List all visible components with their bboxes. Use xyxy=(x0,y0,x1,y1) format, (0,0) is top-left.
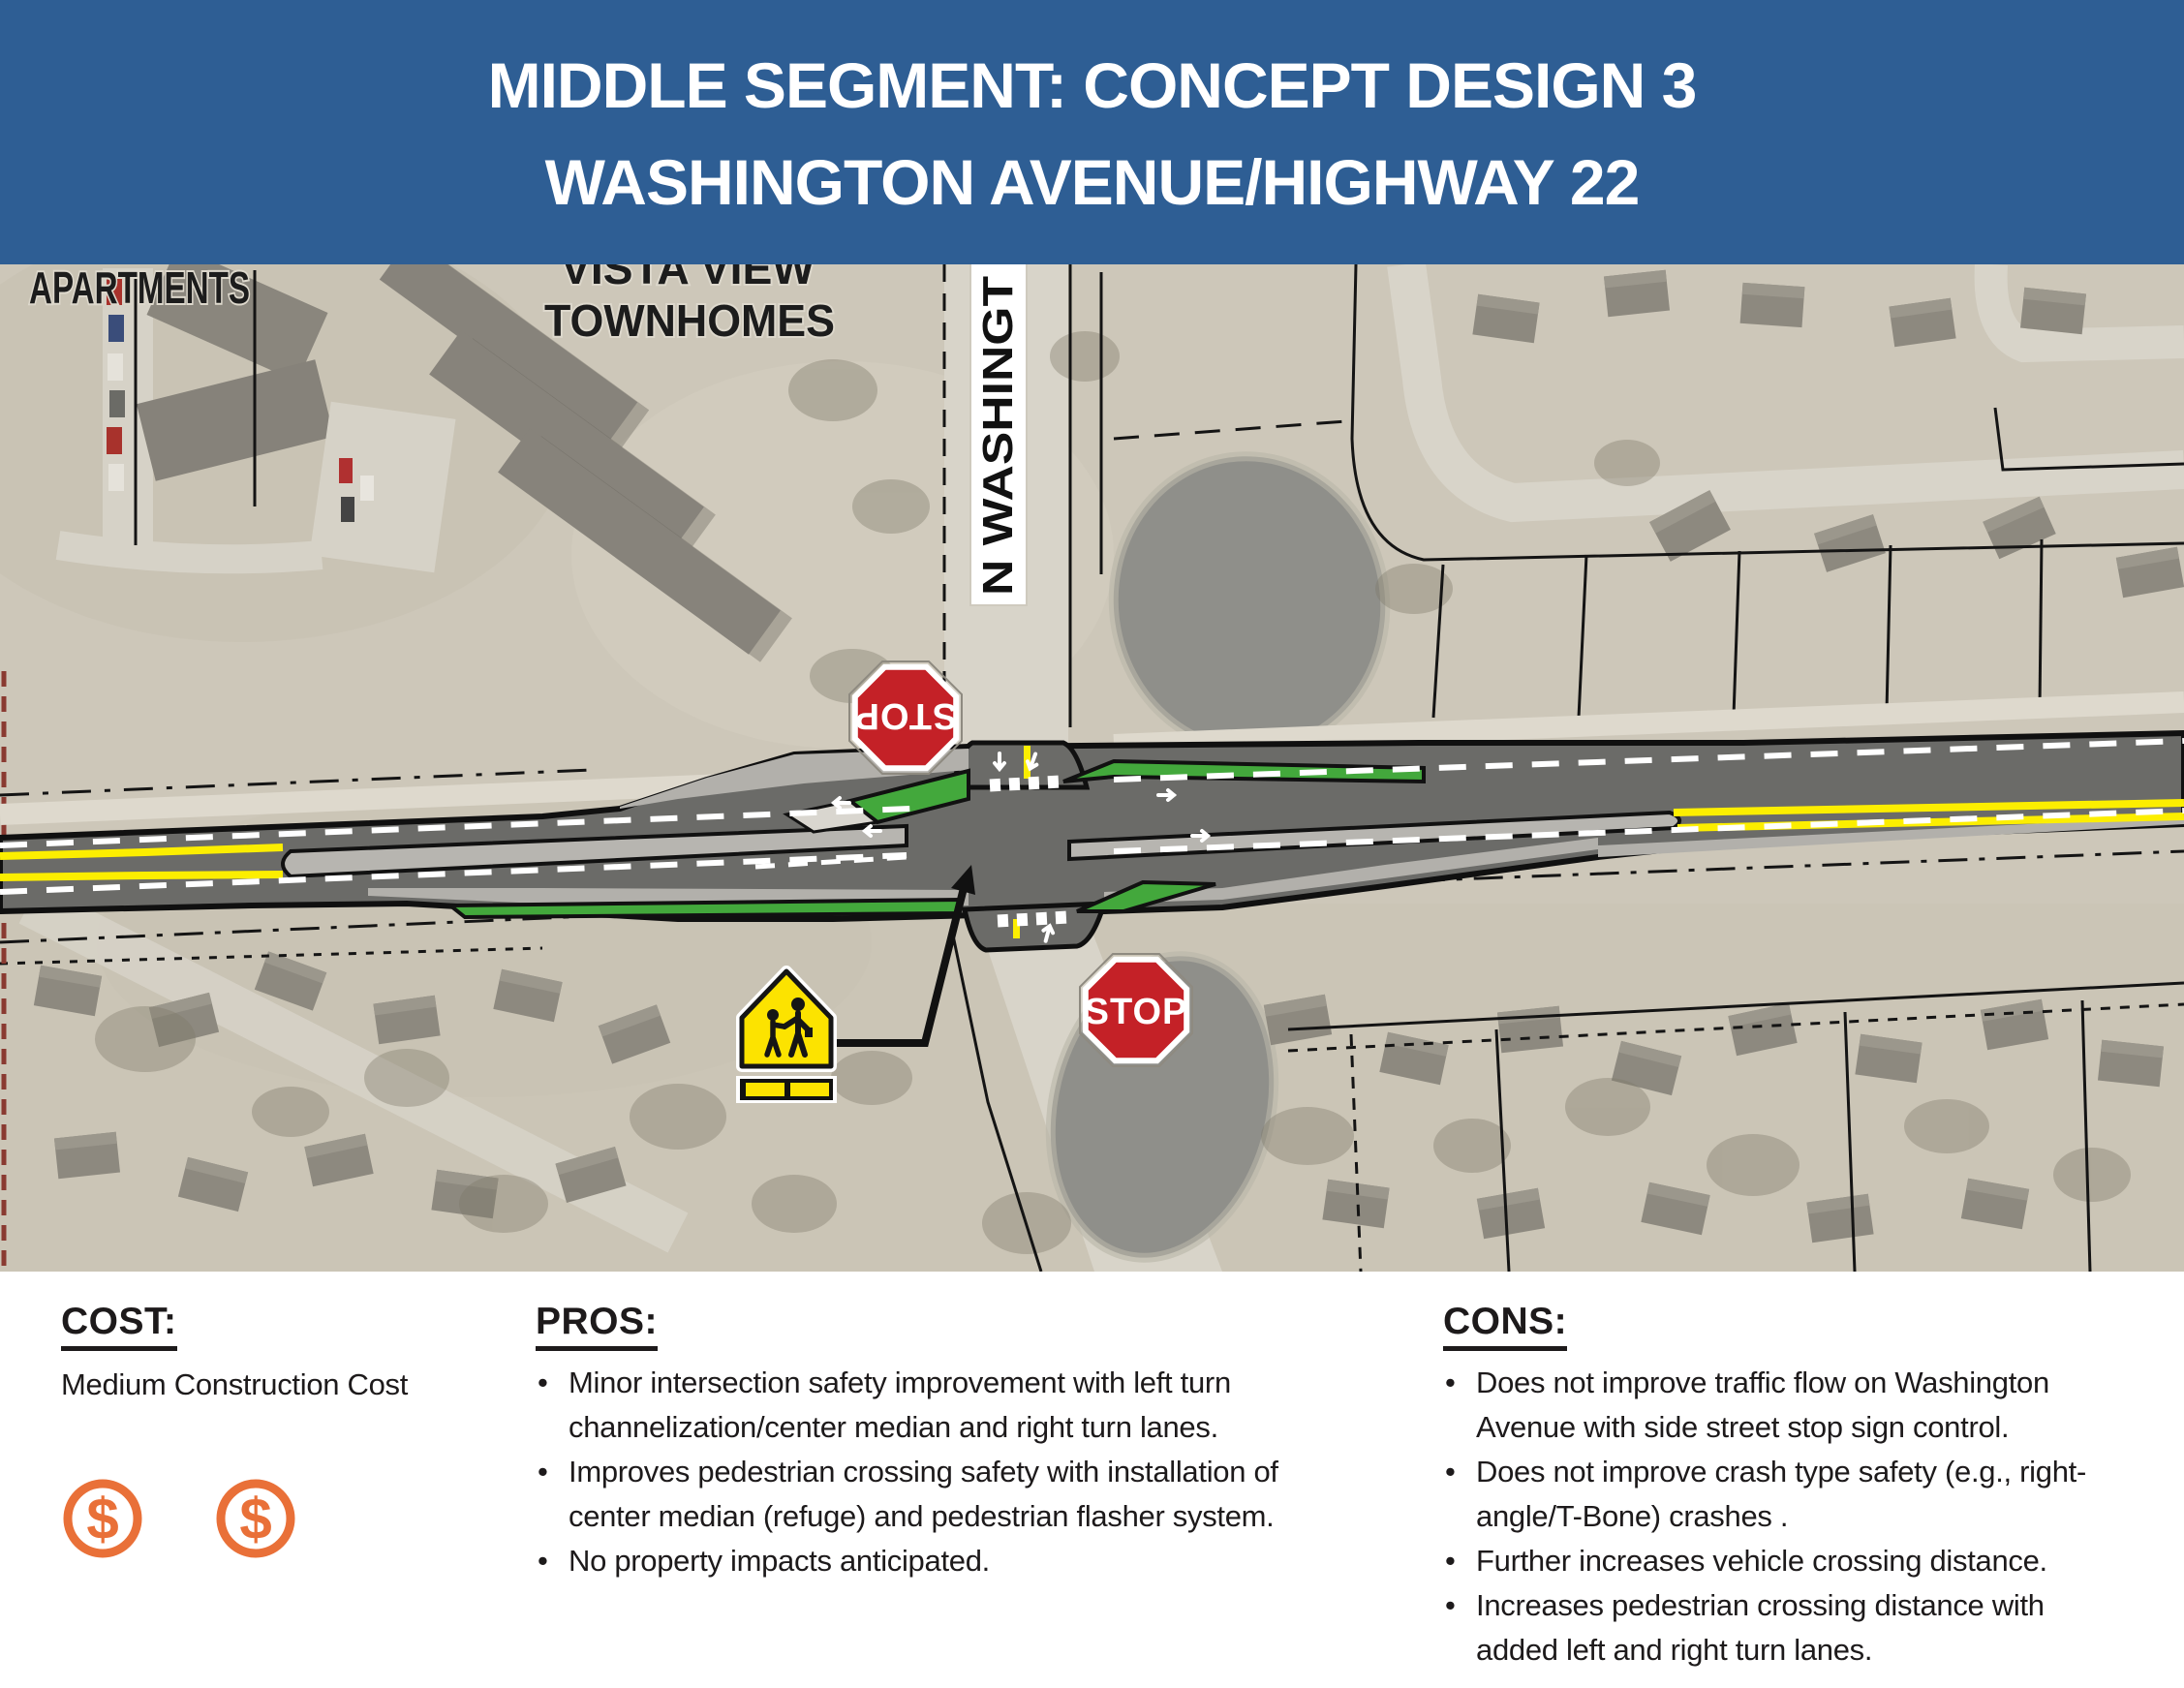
stop-sign-south: STOP xyxy=(1080,954,1192,1066)
dollar-icon: $ xyxy=(58,1474,147,1563)
street-name-sign: N WASHINGT xyxy=(970,264,1027,605)
dollar-glyph: $ xyxy=(239,1487,271,1551)
cons-section: CONS: Does not improve traffic flow on W… xyxy=(1443,1301,2131,1673)
cost-text: Medium Construction Cost xyxy=(61,1363,477,1407)
aerial-map: STOP STOP xyxy=(0,264,2184,1272)
pros-heading: PROS: xyxy=(536,1301,658,1351)
dollar-glyph: $ xyxy=(86,1487,118,1551)
cons-item: Does not improve traffic flow on Washing… xyxy=(1476,1361,2131,1450)
pros-list: Minor intersection safety improvement wi… xyxy=(536,1361,1286,1583)
pros-item: Improves pedestrian crossing safety with… xyxy=(569,1450,1286,1539)
cons-item: Further increases vehicle crossing dista… xyxy=(1476,1539,2131,1583)
pros-section: PROS: Minor intersection safety improvem… xyxy=(536,1301,1286,1583)
concept-design-board: MIDDLE SEGMENT: CONCEPT DESIGN 3 WASHING… xyxy=(0,0,2184,1688)
flasher-plaque xyxy=(736,1076,837,1103)
townhomes-label-line1: VISTA VIEW xyxy=(561,264,815,293)
cost-section: COST: Medium Construction Cost xyxy=(61,1301,477,1407)
page-title-line1: MIDDLE SEGMENT: CONCEPT DESIGN 3 xyxy=(0,37,2184,134)
page-title-line2: WASHINGTON AVENUE/HIGHWAY 22 xyxy=(0,134,2184,230)
stop-sign-north: STOP xyxy=(849,661,962,774)
aerial-map-canvas: STOP STOP xyxy=(0,264,2184,1272)
dollar-icon: $ xyxy=(211,1474,300,1563)
pros-item: Minor intersection safety improvement wi… xyxy=(569,1361,1286,1450)
pros-item: No property impacts anticipated. xyxy=(569,1539,1286,1583)
cons-list: Does not improve traffic flow on Washing… xyxy=(1443,1361,2131,1673)
cons-item: Increases pedestrian crossing distance w… xyxy=(1476,1583,2131,1673)
apartments-label: APARTMENTS xyxy=(29,264,250,313)
street-name-label: N WASHINGT xyxy=(974,276,1022,596)
stop-sign-south-label: STOP xyxy=(1085,992,1188,1032)
townhomes-label-line2: TOWNHOMES xyxy=(544,295,835,346)
cost-heading: COST: xyxy=(61,1301,177,1351)
cons-heading: CONS: xyxy=(1443,1301,1567,1351)
header-banner: MIDDLE SEGMENT: CONCEPT DESIGN 3 WASHING… xyxy=(0,0,2184,264)
cons-item: Does not improve crash type safety (e.g.… xyxy=(1476,1450,2131,1539)
stop-sign-north-label: STOP xyxy=(854,695,958,736)
